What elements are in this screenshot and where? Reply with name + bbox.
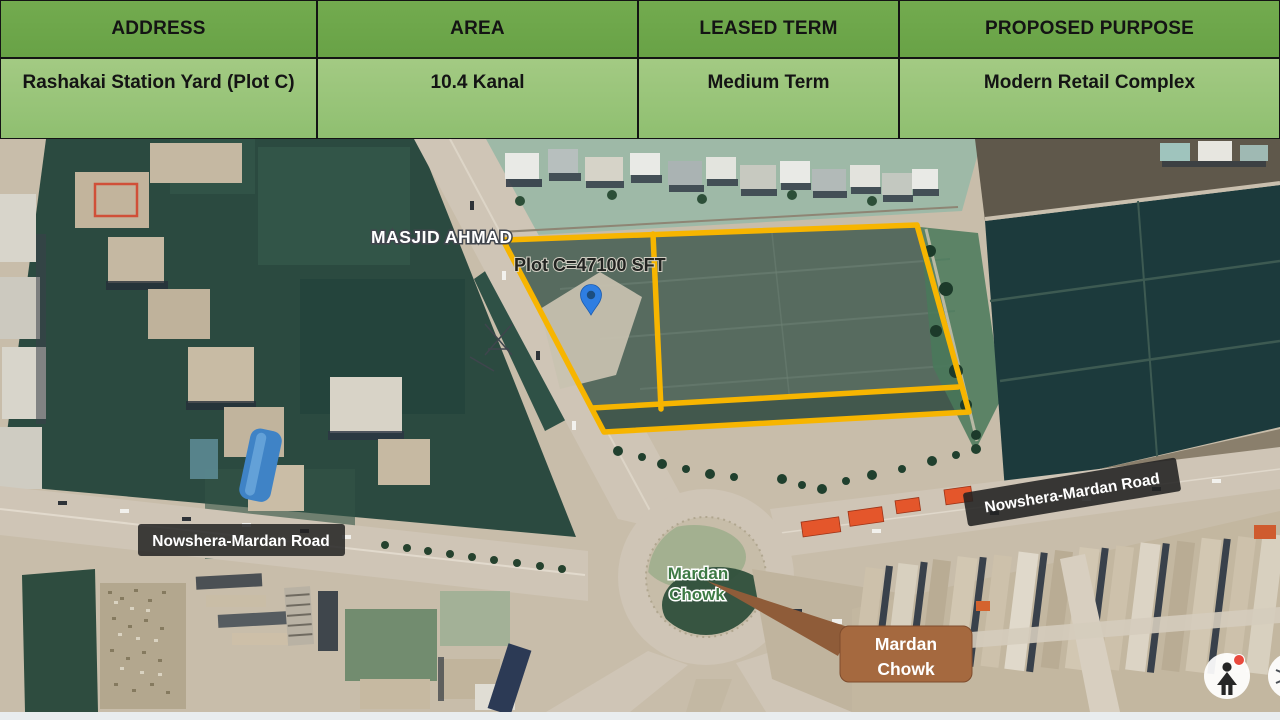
svg-text:Mardan: Mardan <box>668 564 728 583</box>
cell-area: 10.4 Kanal <box>317 58 638 139</box>
plot-area-label: Plot C=47100 SFT <box>514 255 666 275</box>
cell-purpose: Modern Retail Complex <box>899 58 1280 139</box>
satellite-map-canvas: MASJID AHMAD Plot C=47100 SFT Nowshera-M… <box>0 139 1280 712</box>
road-label-left: Nowshera-Mardan Road <box>138 524 345 556</box>
svg-text:Chowk: Chowk <box>877 659 935 679</box>
col-header-purpose: PROPOSED PURPOSE <box>899 0 1280 58</box>
cell-address: Rashakai Station Yard (Plot C) <box>0 58 317 139</box>
terrain <box>0 139 1280 712</box>
bottom-strip <box>0 712 1280 720</box>
svg-text:Mardan: Mardan <box>875 634 937 654</box>
pegman-button[interactable] <box>1204 653 1250 699</box>
satellite-map: MASJID AHMAD Plot C=47100 SFT Nowshera-M… <box>0 139 1280 712</box>
svg-text:Chowk: Chowk <box>669 585 725 604</box>
col-header-area: AREA <box>317 0 638 58</box>
col-header-leased-term: LEASED TERM <box>638 0 899 58</box>
col-header-address: ADDRESS <box>0 0 317 58</box>
slide: ADDRESS AREA LEASED TERM PROPOSED PURPOS… <box>0 0 1280 720</box>
cell-leased-term: Medium Term <box>638 58 899 139</box>
plot-info-table: ADDRESS AREA LEASED TERM PROPOSED PURPOS… <box>0 0 1280 139</box>
notification-dot <box>1234 655 1245 666</box>
poi-label-masjid: MASJID AHMAD <box>371 227 512 247</box>
svg-text:Nowshera-Mardan Road: Nowshera-Mardan Road <box>152 533 329 550</box>
